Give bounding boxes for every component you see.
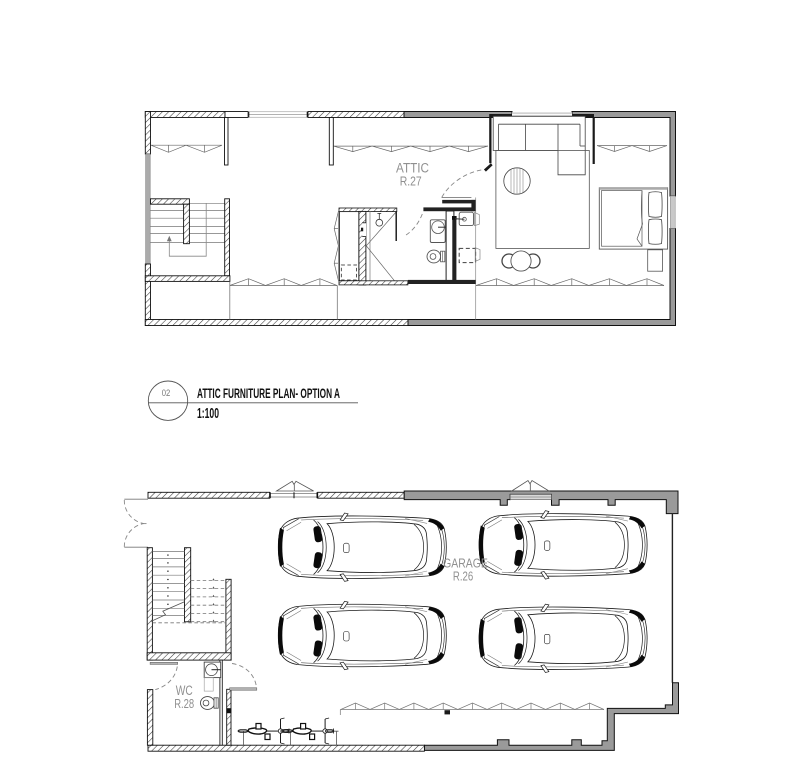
svg-text:R.28: R.28 <box>174 696 194 711</box>
svg-text:1:100: 1:100 <box>197 405 219 422</box>
svg-text:R.27: R.27 <box>400 174 422 189</box>
svg-text:R.26: R.26 <box>453 568 473 583</box>
svg-text:02: 02 <box>162 388 171 398</box>
svg-text:ATTIC FURNITURE PLAN- OPTION A: ATTIC FURNITURE PLAN- OPTION A <box>197 386 340 401</box>
